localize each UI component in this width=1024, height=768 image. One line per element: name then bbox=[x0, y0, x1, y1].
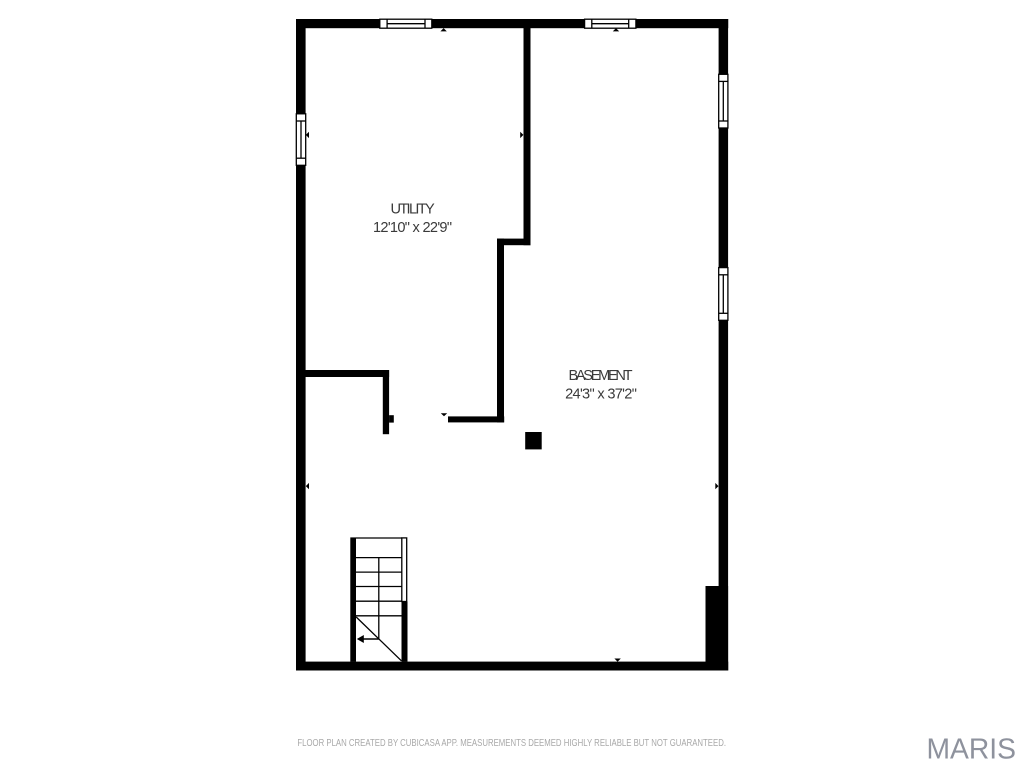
svg-text:24'3" x 37'2": 24'3" x 37'2" bbox=[565, 387, 637, 403]
svg-text:BASEMENT: BASEMENT bbox=[568, 368, 632, 384]
svg-text:UTILITY: UTILITY bbox=[390, 202, 435, 218]
svg-text:MARIS: MARIS bbox=[927, 734, 1017, 766]
svg-text:12'10" x 22'9": 12'10" x 22'9" bbox=[373, 220, 452, 236]
svg-text:FLOOR PLAN CREATED BY CUBICASA: FLOOR PLAN CREATED BY CUBICASA APP. MEAS… bbox=[297, 738, 726, 749]
